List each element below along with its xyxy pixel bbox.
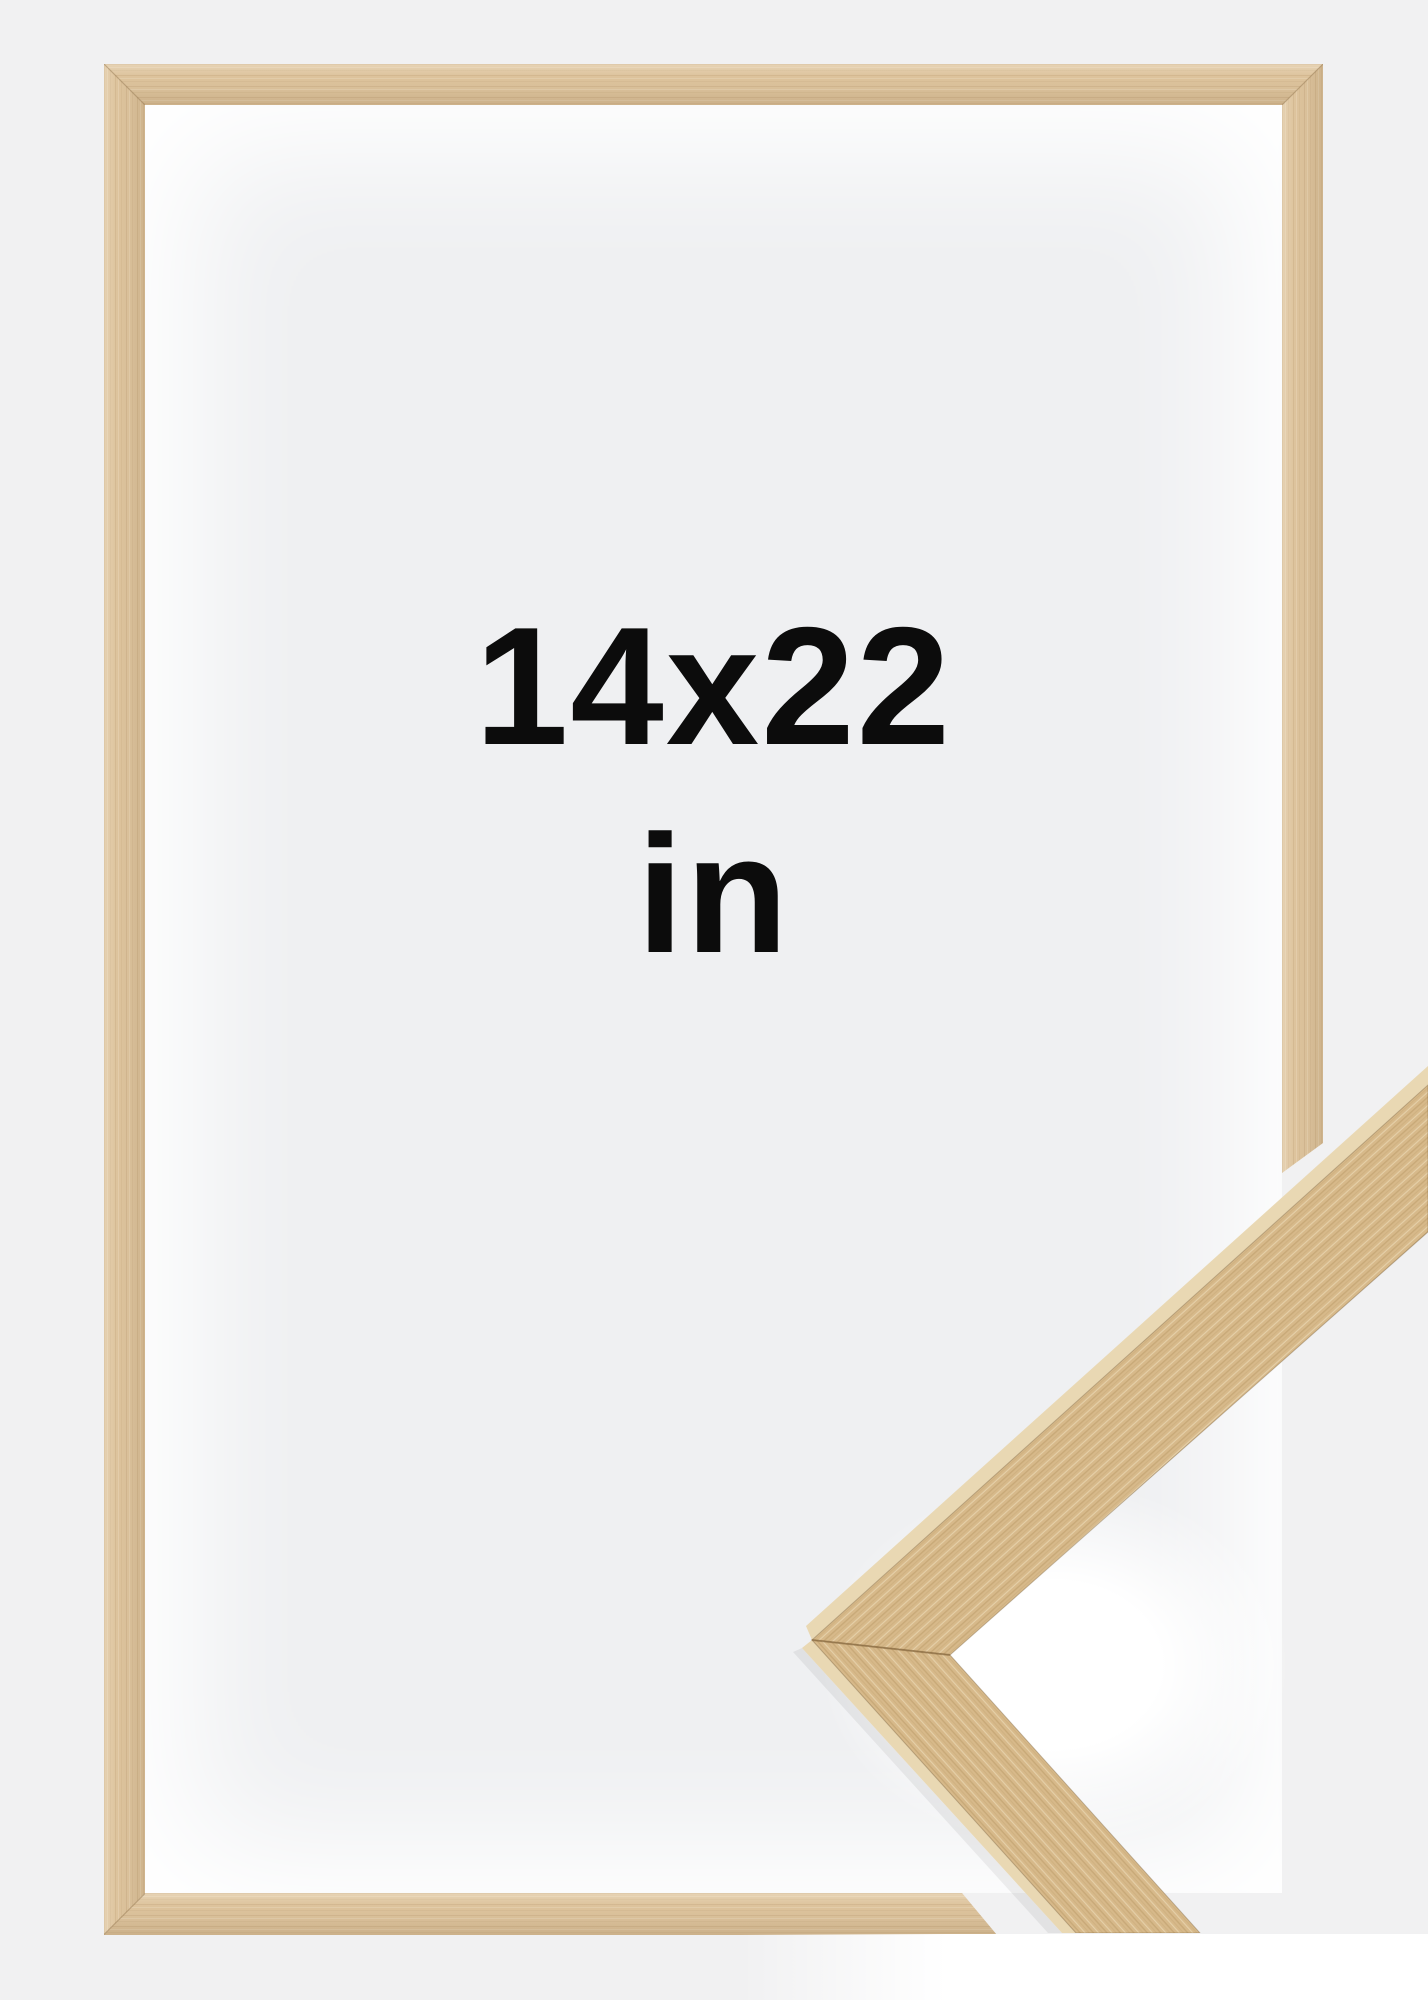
- size-label-unit: in: [145, 790, 1282, 998]
- size-label: 14x22 in: [145, 582, 1282, 998]
- miter-seam-top-right: [1282, 64, 1323, 105]
- corner-detail-background: [740, 1934, 1428, 2000]
- frame-left-bar: [104, 64, 145, 1935]
- size-label-dimensions: 14x22: [145, 582, 1282, 790]
- frame-corner-detail: [780, 1020, 1428, 1933]
- miter-seam-bottom-left: [104, 1893, 145, 1935]
- corner-detail-upper-arm-side-face: [806, 1066, 1428, 1640]
- corner-detail-upper-arm-face: [812, 1085, 1428, 1655]
- miter-seam-top-left: [104, 64, 145, 105]
- frame-right-bar: [1282, 64, 1323, 1173]
- product-image[interactable]: 14x22 in: [0, 0, 1428, 2000]
- corner-detail-lower-arm-face: [812, 1640, 1200, 1933]
- frame-top-bar: [104, 64, 1323, 105]
